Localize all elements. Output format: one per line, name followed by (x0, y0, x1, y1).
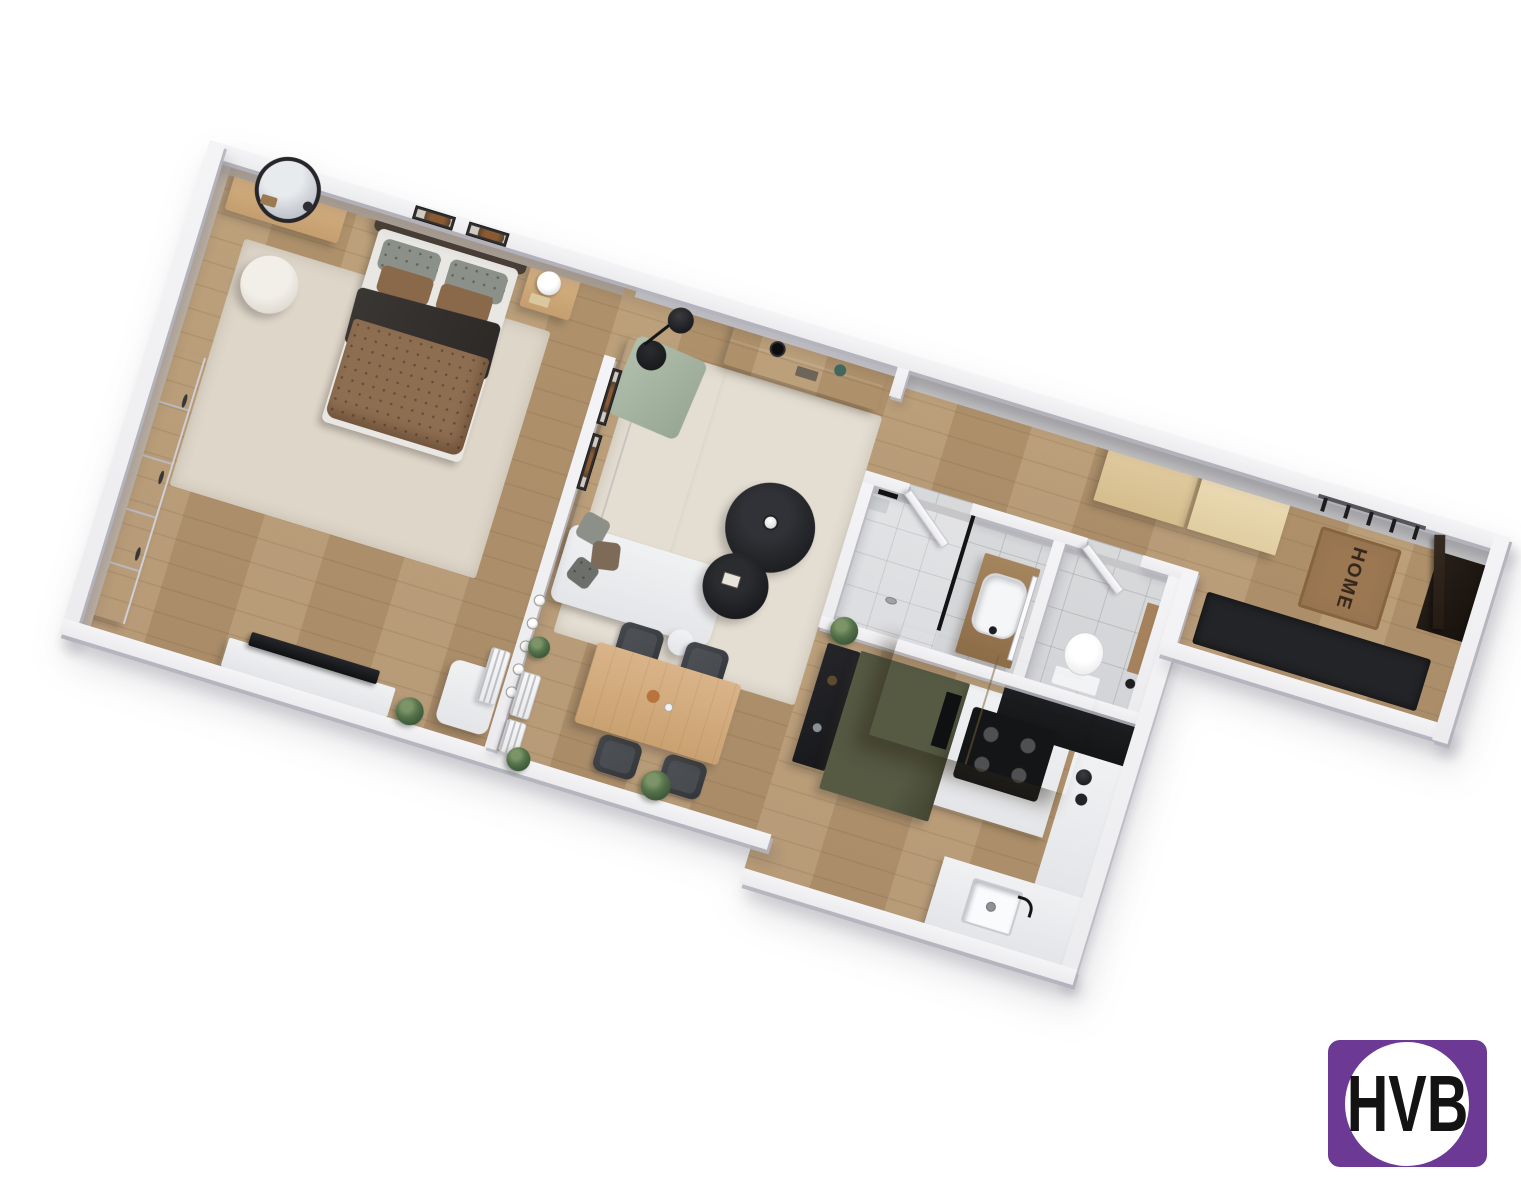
doormat-home-text: HOME (1330, 544, 1370, 613)
screenshot-stage: HOME (0, 0, 1521, 1200)
apartment-floor-plan: HOME (35, 140, 1511, 1111)
hvb-logo-text: HVB (1350, 1040, 1464, 1167)
entry-door-leaf (1433, 535, 1446, 629)
hvb-logo: HVB (1328, 1040, 1487, 1167)
